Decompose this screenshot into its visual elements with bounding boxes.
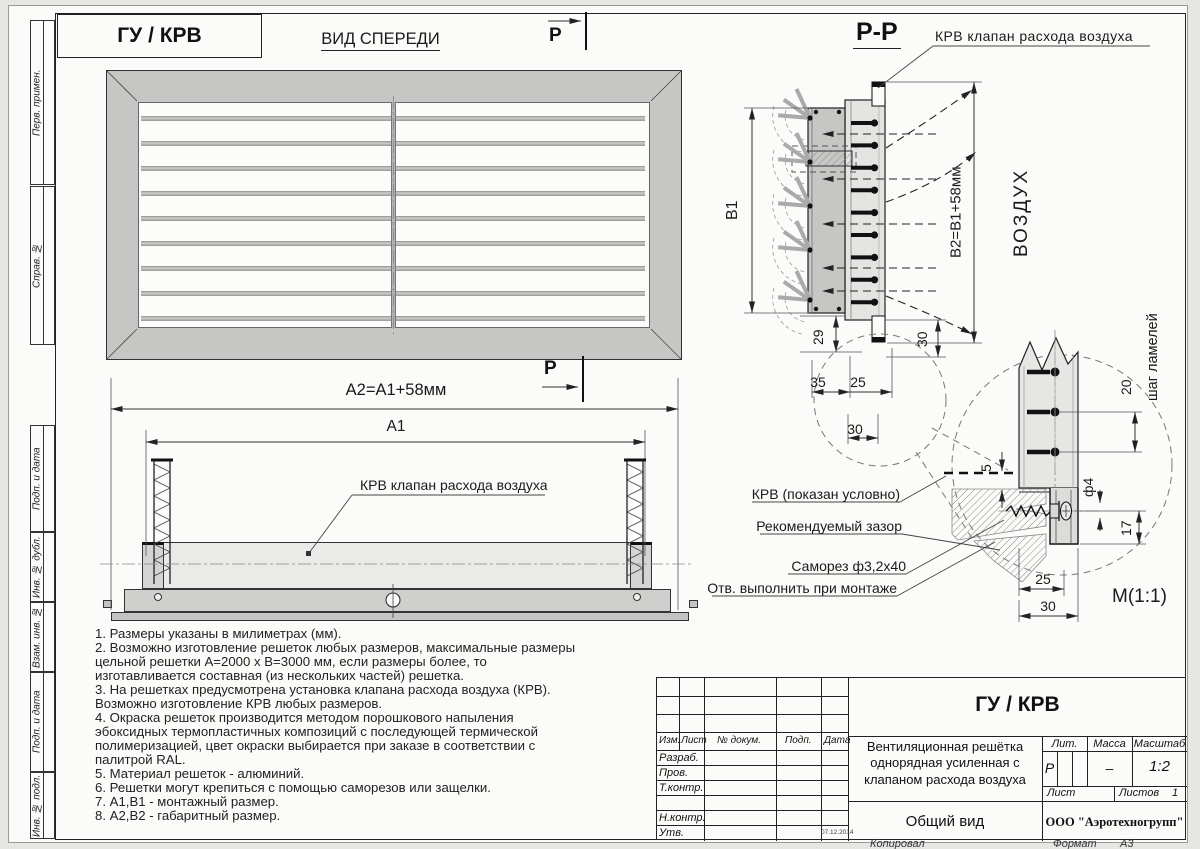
tb-col-izm: Изм. xyxy=(659,735,680,746)
margin-label: Подп. и дата xyxy=(31,672,43,772)
dim-20: 20 xyxy=(1118,368,1134,406)
note-line: 2. Возможно изготовление решеток любых р… xyxy=(95,640,655,655)
dim-25-detail: 25 xyxy=(1022,571,1064,587)
tb-col-podp: Подп. xyxy=(785,735,812,746)
margin-box-divider xyxy=(43,673,44,771)
format-label: Формат xyxy=(1053,838,1097,849)
margin-box-divider xyxy=(43,533,44,601)
tb-company: ООО "Аэротехногрупп" xyxy=(1042,815,1187,830)
margin-label: Инв. № дубл. xyxy=(31,532,43,602)
margin-box-divider xyxy=(43,187,44,344)
note-line: 1. Размеры указаны в милиметрах (мм). xyxy=(95,626,655,641)
tb-listov-value: 1 xyxy=(1172,787,1178,799)
note-line: палитрой RAL. xyxy=(95,752,655,767)
callout-zazor: Рекомендуемый зазор xyxy=(700,518,902,534)
margin-label: Перв. примен. xyxy=(31,20,43,185)
callout-krv-uslovno: КРВ (показан условно) xyxy=(700,486,900,502)
tb-masshtab-value: 1:2 xyxy=(1132,758,1187,775)
tb-row-utv: Утв. xyxy=(659,827,684,839)
note-line: 7. А1,В1 - монтажный размер. xyxy=(95,794,655,809)
margin-box-divider xyxy=(43,773,44,838)
margin-label: Подп. и дата xyxy=(31,425,43,532)
front-view-title: ВИД СПЕРЕДИ xyxy=(298,30,463,49)
tb-date: 07.12.2014 xyxy=(821,829,848,836)
note-line: 8. А2,В2 - габаритный размер. xyxy=(95,808,655,823)
doc-code: ГУ / КРВ xyxy=(117,24,201,48)
tb-col-list: Лист xyxy=(681,735,707,746)
note-line: изготавливается составная (из нескольких… xyxy=(95,668,655,683)
dim-b1: В1 xyxy=(724,180,742,240)
title-block: Изм. Лист № докум. Подп. Дата Разраб. Пр… xyxy=(656,677,1186,840)
note-line: 6. Решетки могут крепиться с помощью сам… xyxy=(95,780,655,795)
grille-flange-plan xyxy=(124,589,671,612)
tb-lit-label: Лит. xyxy=(1042,738,1087,750)
margin-box-divider xyxy=(43,21,44,184)
slat-pitch-label: шаг ламелей xyxy=(1144,300,1162,415)
mounting-plate-plan xyxy=(111,612,689,621)
note-line: 4. Окраска решеток производится методом … xyxy=(95,710,655,725)
tb-lit-value: Р xyxy=(1042,760,1057,776)
tb-list-label: Лист xyxy=(1047,787,1075,799)
detail-scale-label: М(1:1) xyxy=(1112,586,1167,608)
dim-25-section: 25 xyxy=(842,374,874,390)
dim-a1: А1 xyxy=(346,418,446,436)
grille-body-plan xyxy=(142,542,652,589)
dim-30h: 30 xyxy=(838,421,872,437)
tb-row-razrab: Разраб. xyxy=(659,752,699,764)
section-mark-letter-top: Р xyxy=(549,25,562,47)
dim-b2: В2=В1+58мм xyxy=(947,137,965,287)
air-label: ВОЗДУХ xyxy=(1010,150,1034,275)
tb-view-name: Общий вид xyxy=(848,813,1042,830)
tb-row-tkontr: Т.контр. xyxy=(659,782,703,794)
margin-box-divider xyxy=(43,426,44,531)
margin-label: Инв. № подл. xyxy=(31,772,43,839)
tb-col-dokum: № докум. xyxy=(717,735,761,746)
dim-a2: А2=А1+58мм xyxy=(296,381,496,400)
section-mark-letter-bottom: Р xyxy=(544,358,557,380)
section-krv-callout: КРВ клапан расхода воздуха xyxy=(935,28,1133,44)
tb-row-nkontr: Н.контр. xyxy=(659,812,706,824)
dim-5: 5 xyxy=(978,450,994,486)
tb-col-data: Дата xyxy=(824,735,850,746)
plan-krv-callout: КРВ клапан расхода воздуха xyxy=(360,477,548,493)
dim-35: 35 xyxy=(802,374,834,390)
tb-massa-value: – xyxy=(1087,760,1132,776)
plate-tab-left xyxy=(103,600,112,608)
callout-otv: Отв. выполнить при монтаже xyxy=(697,580,897,596)
dim-17: 17 xyxy=(1118,508,1134,548)
dim-29: 29 xyxy=(810,318,826,356)
note-line: эбоксидных термопластичных композиций с … xyxy=(95,724,655,739)
grille-center-mullion xyxy=(391,102,396,328)
note-line: полимеризацией, цвет окраски выбирается … xyxy=(95,738,655,753)
note-line: 5. Материал решеток - алюминий. xyxy=(95,766,655,781)
spring-clip-bracket-left xyxy=(142,542,164,589)
margin-box-divider xyxy=(43,603,44,671)
kopiroval-label: Копировал xyxy=(870,838,925,849)
doc-code-box: ГУ / КРВ xyxy=(57,14,262,58)
drawing-page: Перв. примен. Справ. № Подп. и дата Инв.… xyxy=(0,0,1200,849)
tb-product-name: Вентиляционная решётка однорядная усилен… xyxy=(853,739,1037,788)
tb-doc-code: ГУ / КРВ xyxy=(848,693,1187,717)
margin-label: Взам. инв. № xyxy=(31,602,43,672)
format-value: А3 xyxy=(1120,838,1133,849)
tb-row-prov: Пров. xyxy=(659,767,688,779)
callout-samorez: Саморез ф3,2х40 xyxy=(706,558,906,574)
dim-30-detail: 30 xyxy=(1022,598,1074,614)
tb-massa-label: Масса xyxy=(1087,738,1132,750)
tb-listov-label: Листов xyxy=(1119,787,1159,799)
dim-30v: 30 xyxy=(914,320,930,358)
section-view-title: Р-Р xyxy=(853,18,901,49)
note-line: 3. На решетках предусмотрена установка к… xyxy=(95,682,655,697)
spring-clip-bracket-right xyxy=(630,542,652,589)
plate-tab-right xyxy=(689,600,698,608)
margin-label: Справ. № xyxy=(31,186,43,345)
dim-f4: ф4 xyxy=(1080,468,1096,506)
note-line: Возможно изготовление КРВ любых размеров… xyxy=(95,696,655,711)
tb-masshtab-label: Масштаб xyxy=(1132,738,1187,750)
note-line: цельной решетки А=2000 х В=3000 мм, если… xyxy=(95,654,655,669)
